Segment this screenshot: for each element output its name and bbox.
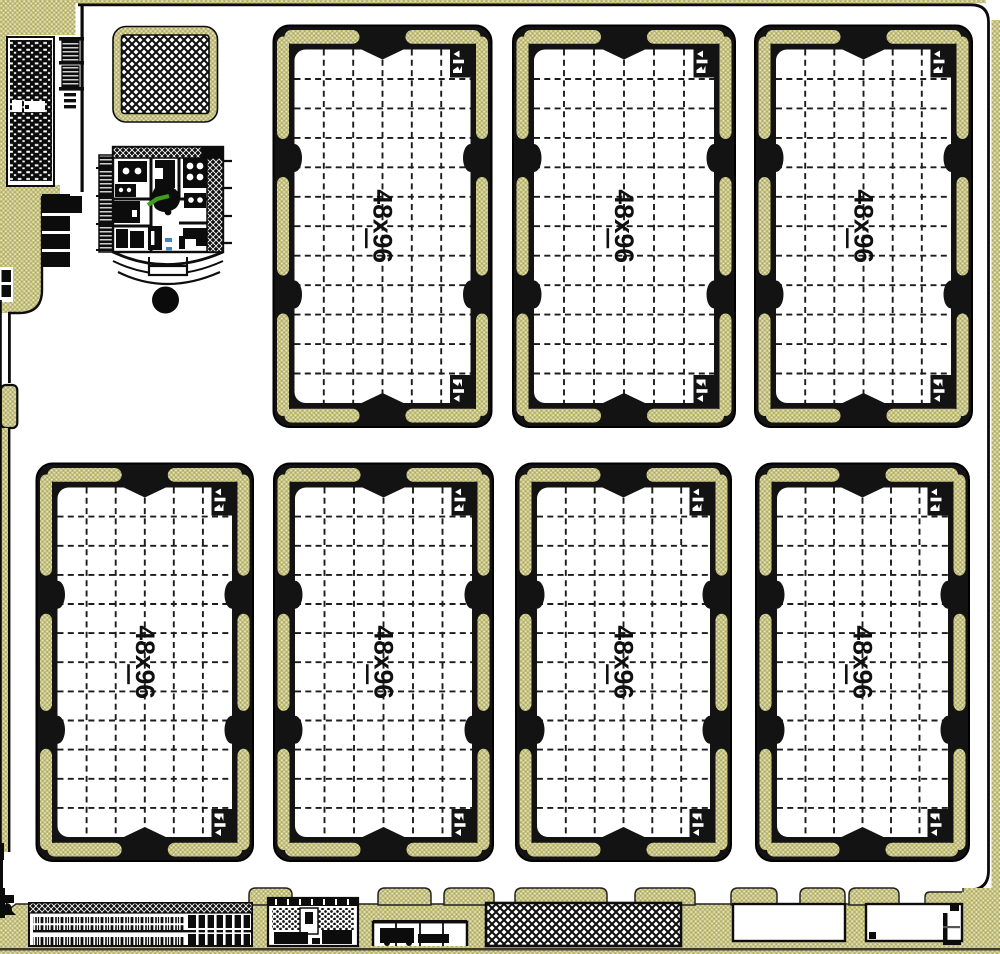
svg-text:48x96: 48x96 [369, 625, 399, 699]
svg-text:48x96: 48x96 [609, 189, 639, 263]
svg-text:48x96: 48x96 [609, 625, 639, 699]
svg-text:48x96: 48x96 [849, 189, 879, 263]
svg-text:48x96: 48x96 [368, 189, 398, 263]
svg-text:48x96: 48x96 [130, 625, 160, 699]
svg-text:48x96: 48x96 [848, 625, 878, 699]
